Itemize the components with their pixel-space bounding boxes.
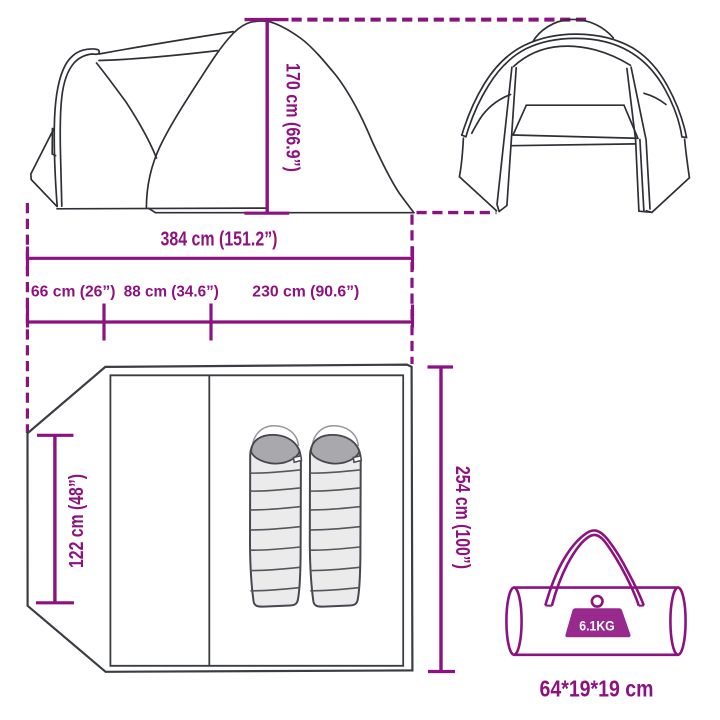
svg-text:170 cm (66.9”): 170 cm (66.9”) (282, 63, 304, 172)
svg-text:66 cm (26”): 66 cm (26”) (31, 284, 116, 301)
svg-text:6.1KG: 6.1KG (579, 618, 615, 633)
svg-text:64*19*19 cm: 64*19*19 cm (540, 675, 654, 701)
svg-text:122 cm (48”): 122 cm (48”) (66, 474, 88, 568)
svg-text:254 cm (100”): 254 cm (100”) (451, 466, 473, 569)
svg-text:88 cm (34.6”): 88 cm (34.6”) (124, 284, 219, 301)
svg-text:384 cm (151.2”): 384 cm (151.2”) (161, 228, 278, 250)
svg-text:230 cm (90.6”): 230 cm (90.6”) (252, 284, 359, 301)
